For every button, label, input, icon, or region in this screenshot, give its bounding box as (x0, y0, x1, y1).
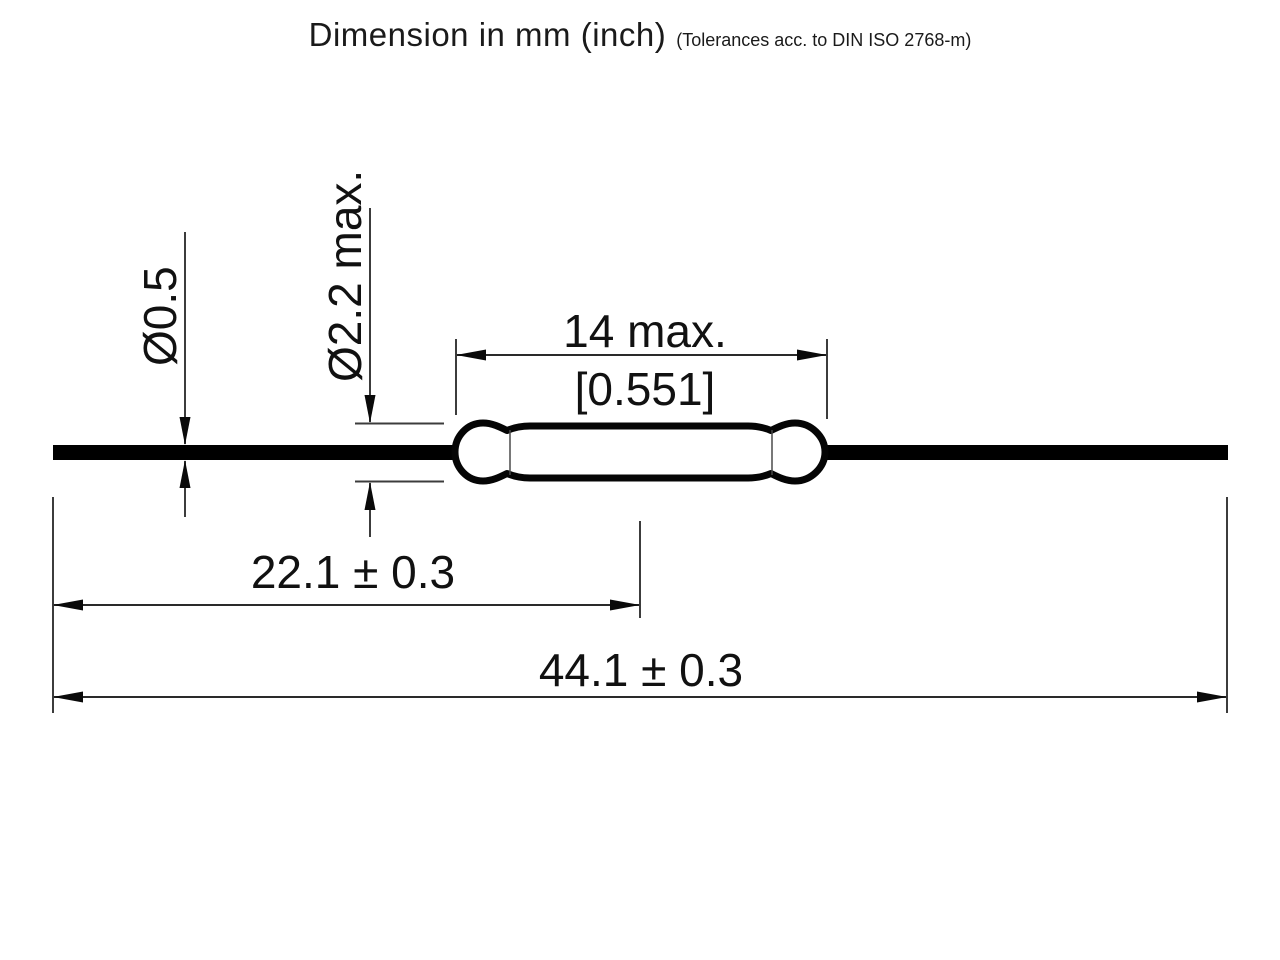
label-lead-diameter: Ø0.5 (134, 266, 186, 366)
arrow-glass-diameter-down (365, 395, 376, 423)
label-glass-length-mm: 14 max. (563, 305, 727, 357)
arrow-lead-to-center-left (53, 600, 83, 611)
arrow-total-length-left (53, 692, 83, 703)
reed-switch-drawing: Ø0.5 Ø2.2 max. 14 max. [0.551] 22.1 ± 0.… (0, 0, 1280, 960)
arrow-lead-to-center-right (610, 600, 640, 611)
arrow-glass-length-left (456, 350, 486, 361)
label-lead-to-center: 22.1 ± 0.3 (251, 546, 455, 598)
arrow-lead-diameter-up (180, 460, 191, 488)
technical-drawing-page: Dimension in mm (inch) (Tolerances acc. … (0, 0, 1280, 960)
arrow-glass-length-right (797, 350, 827, 361)
arrow-glass-diameter-up (365, 482, 376, 510)
label-total-length: 44.1 ± 0.3 (539, 644, 743, 696)
arrow-lead-diameter-down (180, 417, 191, 445)
arrow-total-length-right (1197, 692, 1227, 703)
label-glass-length-inch: [0.551] (575, 363, 716, 415)
label-glass-diameter: Ø2.2 max. (319, 170, 371, 382)
